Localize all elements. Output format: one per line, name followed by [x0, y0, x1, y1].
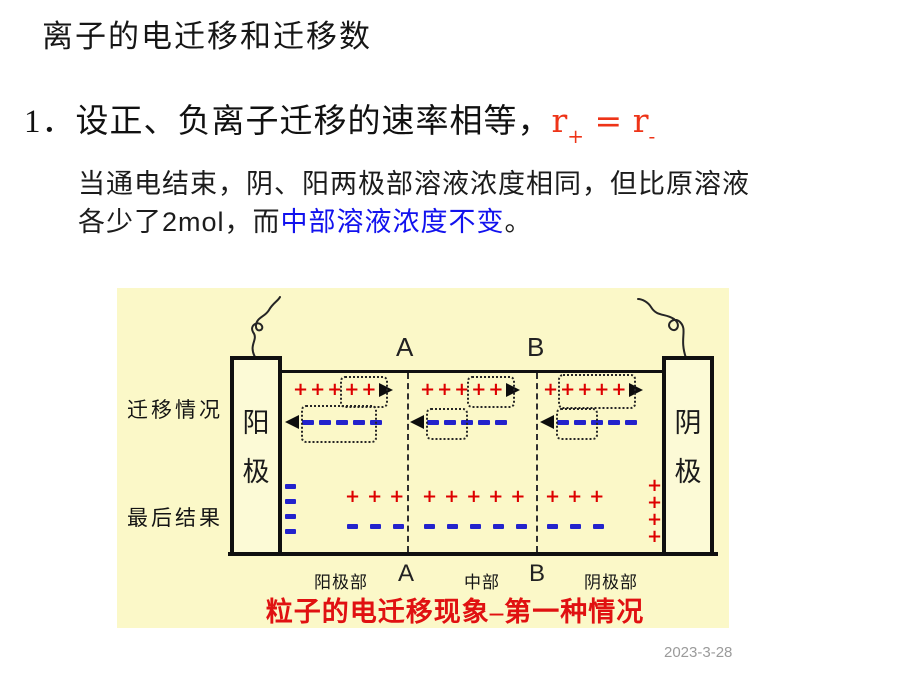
formula-rhs: r: [633, 101, 649, 140]
arrow-left-icon: [410, 415, 424, 429]
formula-equals: =: [595, 101, 623, 140]
result-cations-middle-region: +++++: [422, 489, 525, 505]
point-1-line: 1．设正、负离子迁移的速率相等，r+ = r-: [24, 94, 655, 145]
slide-title: 离子的电迁移和迁移数: [42, 11, 372, 56]
anode-label-char1: 阳: [243, 410, 270, 437]
migration-row-label: 迁移情况: [127, 394, 223, 424]
body-paragraph: 当通电结束，阴、阳两极部溶液浓度相同，但比原溶液 各少了2mol，而中部溶液浓度…: [78, 165, 750, 241]
point-number: 1．: [24, 104, 76, 140]
migrating-cations-box: [558, 374, 636, 409]
migrating-anions-box: [301, 405, 377, 443]
boundary-b-dashed-line: [536, 373, 538, 552]
point-text: 设正、负离子迁移的速率相等，: [76, 104, 552, 140]
arrow-left-icon: [540, 415, 554, 429]
migrating-anions-box: [556, 408, 598, 440]
result-anions-cathode-region: ---: [547, 524, 604, 529]
cell-bottom-wall: [228, 552, 718, 556]
arrow-left-icon: [285, 415, 299, 429]
boundary-a-bottom-label: A: [398, 562, 414, 586]
wire-right-icon: [609, 288, 691, 358]
result-cations-cathode-region: +++: [545, 489, 604, 505]
formula-lhs: r: [552, 101, 568, 140]
body-line-1: 当通电结束，阴、阳两极部溶液浓度相同，但比原溶液: [78, 165, 750, 203]
cathode-label-char2: 极: [675, 459, 702, 486]
cathode-electrode: 阴 极: [662, 356, 714, 556]
result-cations-anode-region: +++: [345, 489, 404, 505]
migrating-cations-box: [340, 376, 388, 408]
body-line-2-prefix: 各少了2mol，而: [78, 207, 281, 237]
boundary-a-top-label: A: [396, 334, 413, 360]
body-line-2-highlight: 中部溶液浓度不变: [281, 207, 505, 237]
body-line-2-period: 。: [505, 207, 533, 237]
electromigration-diagram: A B 阳 极 阴 极 迁移情况 最后结果 +++++ +++++ +++++: [117, 288, 729, 628]
anode-label-char2: 极: [243, 459, 270, 486]
migrating-cations-box: [467, 376, 515, 408]
diagram-caption: 粒子的电迁移现象–第一种情况: [252, 590, 658, 629]
result-anions-anode-region: ---: [347, 524, 404, 529]
cell-top-wall: [282, 370, 662, 373]
boundary-b-top-label: B: [527, 334, 544, 360]
wire-left-icon: [222, 290, 292, 358]
body-line-2: 各少了2mol，而中部溶液浓度不变。: [78, 203, 750, 241]
result-anions-middle-region: -----: [424, 524, 527, 529]
anode-surface-anions-column: ----: [285, 484, 296, 534]
boundary-a-dashed-line: [407, 373, 409, 552]
formula-lhs-sub: +: [567, 124, 584, 148]
formula-rhs-sub: -: [648, 124, 655, 148]
cathode-label-char1: 阴: [675, 410, 702, 437]
migrating-anions-box: [426, 408, 468, 440]
result-row-label: 最后结果: [127, 502, 223, 532]
rate-equality-formula: r+ = r-: [552, 101, 656, 140]
slide-date: 2023-3-28: [664, 644, 732, 661]
boundary-b-bottom-label: B: [529, 562, 545, 586]
anode-electrode: 阳 极: [230, 356, 282, 556]
cathode-surface-cations-column: ++++: [647, 478, 662, 544]
